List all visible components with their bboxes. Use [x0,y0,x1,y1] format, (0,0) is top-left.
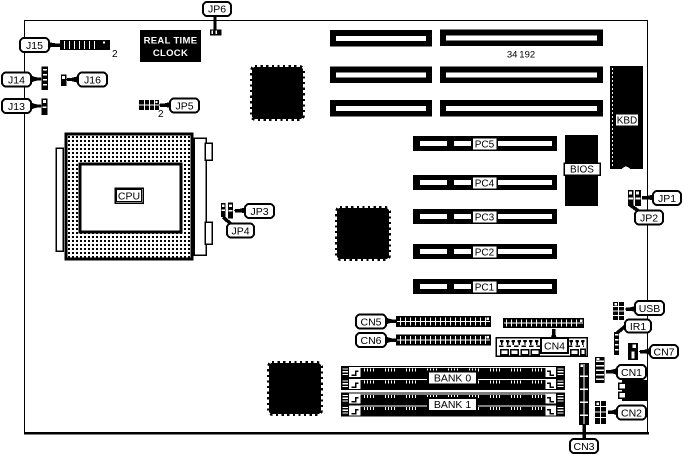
svg-text:CN3: CN3 [573,441,594,453]
svg-text:PC2: PC2 [475,247,495,258]
svg-text:J14: J14 [8,74,25,86]
svg-text:BANK 0: BANK 0 [434,373,472,385]
svg-text:JP1: JP1 [658,193,676,205]
svg-text:CN5: CN5 [360,316,381,328]
svg-text:BANK 1: BANK 1 [434,399,472,411]
svg-text:JP2: JP2 [640,212,658,224]
svg-text:CN7: CN7 [653,346,674,358]
svg-text:PC3: PC3 [475,212,495,223]
svg-text:KBD: KBD [617,116,638,127]
svg-text:REAL TIME: REAL TIME [144,36,198,47]
svg-text:2: 2 [112,49,118,60]
svg-text:CN1: CN1 [621,367,642,379]
svg-text:J13: J13 [8,101,25,113]
svg-text:IR1: IR1 [630,321,647,333]
svg-text:J16: J16 [84,74,101,86]
svg-text:JP6: JP6 [208,4,226,16]
svg-text:JP4: JP4 [231,225,249,237]
svg-text:JP3: JP3 [250,206,268,218]
svg-text:BIOS: BIOS [570,165,594,176]
svg-text:CPU: CPU [118,191,140,203]
svg-text:PC1: PC1 [475,282,495,293]
svg-text:CLOCK: CLOCK [153,48,188,59]
svg-text:JP5: JP5 [175,100,193,112]
svg-text:2: 2 [158,109,164,120]
svg-text:USB: USB [639,303,661,315]
svg-text:PC4: PC4 [475,178,495,189]
svg-text:J15: J15 [26,40,43,52]
svg-text:CN4: CN4 [544,341,565,353]
svg-text:PC5: PC5 [475,139,495,150]
svg-text:34 192: 34 192 [507,50,535,61]
svg-text:CN6: CN6 [360,335,381,347]
svg-text:CN2: CN2 [621,407,642,419]
